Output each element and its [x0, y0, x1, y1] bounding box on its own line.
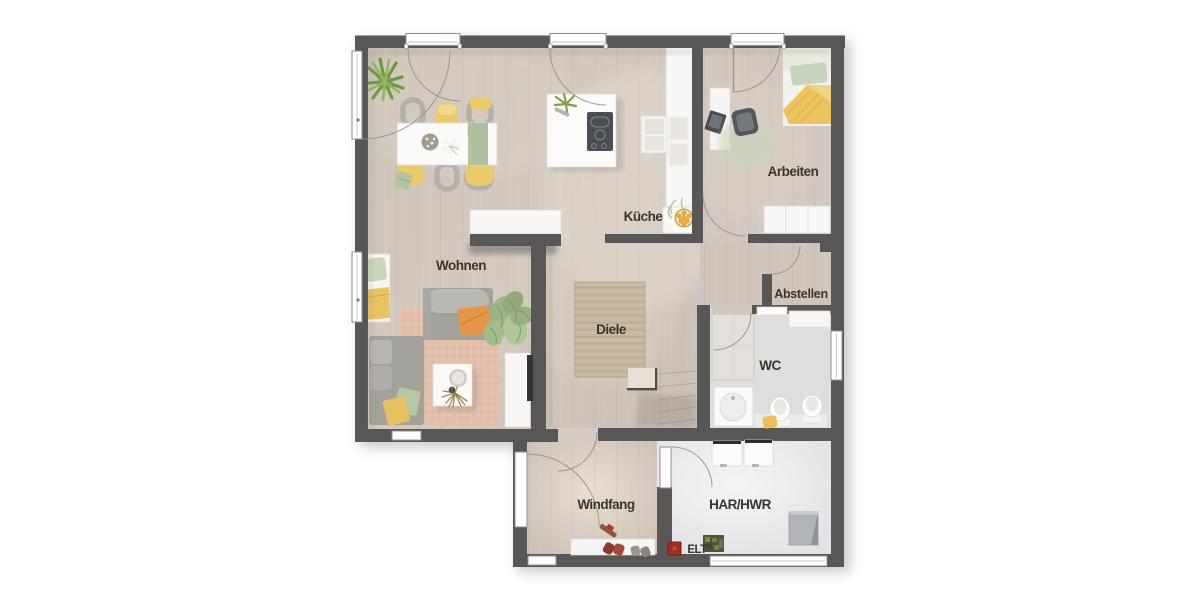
svg-text:Arbeiten: Arbeiten — [768, 164, 819, 179]
svg-text:Diele: Diele — [596, 322, 627, 337]
svg-text:Windfang: Windfang — [577, 497, 635, 512]
svg-text:HAR/HWR: HAR/HWR — [709, 497, 771, 512]
svg-text:WC: WC — [759, 358, 781, 373]
svg-text:Abstellen: Abstellen — [774, 287, 828, 301]
svg-text:Wohnen: Wohnen — [436, 258, 486, 273]
svg-text:ELT: ELT — [687, 544, 707, 556]
svg-text:Küche: Küche — [624, 209, 664, 224]
